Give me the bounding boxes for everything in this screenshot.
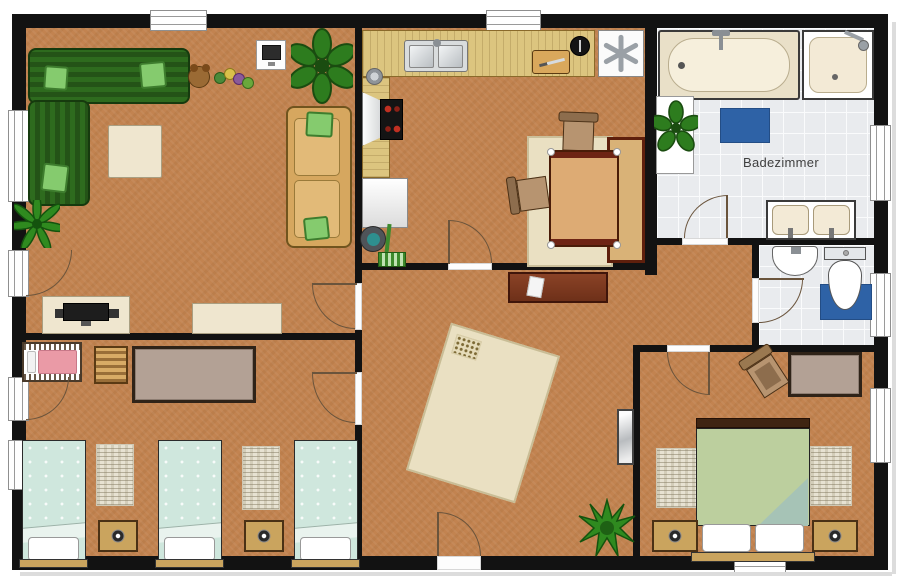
bed-blanket	[295, 441, 357, 533]
dining-chair[interactable]	[555, 111, 600, 153]
toilet-button	[843, 250, 849, 256]
table-leg	[547, 148, 555, 156]
striped-dresser[interactable]	[94, 346, 128, 384]
bed-footboard	[19, 559, 88, 568]
threshold-living-hall	[355, 283, 362, 330]
spiky-plant[interactable]	[578, 498, 636, 558]
double-bed[interactable]	[696, 418, 810, 562]
toys[interactable]	[188, 64, 254, 92]
single-bed[interactable]	[158, 440, 222, 566]
sofa-cushion	[305, 111, 333, 137]
bedside-rug[interactable]	[810, 446, 852, 506]
tv	[63, 303, 109, 321]
bed-pillow	[755, 524, 804, 552]
nightstand-knob	[258, 530, 271, 543]
entrance-door-threshold[interactable]	[437, 556, 481, 570]
toilet-tank	[824, 247, 866, 260]
tv-stand	[81, 321, 91, 326]
bucket-water	[367, 233, 380, 246]
bathtub-faucet-stem	[719, 35, 723, 50]
bed-footboard	[155, 559, 224, 568]
washing-machine[interactable]	[362, 178, 408, 228]
rug-block	[451, 334, 482, 361]
vanity-tap	[788, 228, 793, 238]
nightstand[interactable]	[652, 520, 698, 552]
nightstand[interactable]	[244, 520, 284, 552]
window-left-1[interactable]	[8, 110, 29, 202]
nightstand-knob	[112, 530, 125, 543]
plan-shadow-right	[892, 22, 896, 574]
bench[interactable]	[192, 303, 282, 334]
bedside-rug[interactable]	[242, 446, 280, 510]
mirror[interactable]	[617, 409, 634, 465]
bed-pillow	[28, 537, 79, 561]
nightstand-knob	[829, 530, 842, 543]
window-right-bedroom[interactable]	[870, 388, 891, 463]
monitor-stand	[268, 62, 275, 66]
bed-headboard	[696, 418, 810, 428]
shower-drain	[832, 74, 838, 80]
wall-outer-top	[12, 14, 888, 28]
bed-blanket	[159, 441, 221, 533]
threshold-kitchen-hall	[448, 263, 492, 270]
room-label-bathroom: Badezimmer	[743, 155, 819, 170]
bed-footboard	[291, 559, 360, 568]
bath-mat[interactable]	[720, 108, 770, 143]
window-top-1[interactable]	[150, 10, 207, 31]
wall-bath-bottom-a	[645, 238, 682, 245]
window-top-2[interactable]	[486, 10, 541, 31]
sink-basin	[409, 45, 434, 68]
wall-bedroom-top-b	[710, 345, 874, 352]
bathroom-plant[interactable]	[654, 100, 698, 156]
bedside-rug[interactable]	[656, 448, 698, 508]
bed-footboard	[691, 552, 815, 562]
table-rail	[551, 152, 617, 158]
stove-cooktop[interactable]	[380, 99, 403, 140]
counter-knob	[366, 68, 383, 85]
sofa-cushion	[303, 216, 330, 241]
table-leg	[613, 241, 621, 249]
table-leg	[547, 241, 555, 249]
bed-pillow	[702, 524, 751, 552]
bed-pillow	[300, 537, 351, 561]
dining-table[interactable]	[549, 150, 619, 247]
floor-plan: Badezimmer	[0, 0, 900, 580]
window-right-wc[interactable]	[870, 273, 891, 337]
nightstand-knob	[669, 530, 682, 543]
wall-monitor[interactable]	[256, 40, 286, 70]
bathtub[interactable]	[658, 30, 800, 100]
palm-plant[interactable]	[14, 200, 60, 248]
nightstand[interactable]	[812, 520, 858, 552]
chair-seat	[562, 120, 594, 151]
threshold-bedroom	[667, 345, 710, 352]
sink-basin	[438, 45, 463, 68]
threshold-bathroom	[682, 238, 728, 245]
bedside-rug[interactable]	[96, 444, 134, 506]
coffee-table[interactable]	[108, 125, 162, 178]
sofa-cushion	[40, 163, 69, 194]
bedroom-rug[interactable]	[788, 352, 862, 397]
bed-blanket	[23, 441, 85, 533]
pot[interactable]	[570, 36, 590, 56]
teddy-ear	[190, 64, 198, 72]
sofa-cushion	[139, 61, 167, 89]
mop[interactable]	[378, 252, 406, 267]
sideboard[interactable]	[508, 272, 608, 303]
single-bed[interactable]	[22, 440, 86, 566]
double-vanity[interactable]	[766, 200, 856, 240]
bathtub-drain	[678, 62, 685, 69]
vanity-tap	[829, 228, 834, 238]
kids-rug[interactable]	[132, 346, 256, 403]
crib-pillow	[27, 351, 36, 373]
wall-living-kids	[26, 333, 362, 340]
shower[interactable]	[802, 30, 874, 100]
crib-blanket	[38, 350, 77, 374]
nightstand[interactable]	[98, 520, 138, 552]
window-right-bath[interactable]	[870, 125, 891, 201]
freezer[interactable]	[598, 30, 644, 77]
tv-console[interactable]	[42, 296, 130, 334]
table-rail	[551, 239, 617, 245]
threshold-kids-hall	[355, 372, 362, 425]
plan-shadow-bottom	[20, 572, 892, 576]
wc-tap	[791, 247, 801, 254]
large-potted-plant[interactable]	[291, 28, 353, 104]
bathtub-basin	[668, 38, 790, 92]
teddy-ear	[202, 64, 210, 72]
threshold-wc	[752, 278, 759, 323]
double-sink[interactable]	[404, 40, 468, 72]
sofa-cushion	[43, 65, 69, 91]
pot-handle	[579, 40, 581, 52]
paper-sheet	[526, 276, 544, 298]
monitor-screen	[262, 45, 281, 60]
knife-icon	[539, 58, 565, 67]
cutting-board[interactable]	[532, 50, 570, 74]
wall-bedroom-top-a	[633, 345, 667, 352]
faucet-icon	[433, 39, 441, 47]
chair-seat	[516, 176, 550, 212]
table-leg	[613, 148, 621, 156]
snowflake-icon	[599, 31, 643, 76]
bucket[interactable]	[360, 226, 386, 252]
single-bed[interactable]	[294, 440, 358, 566]
bed-pillow	[164, 537, 215, 561]
crib[interactable]	[22, 342, 82, 382]
shower-head-icon	[858, 40, 869, 51]
toy-segment	[242, 77, 254, 89]
wall-wc-left-a	[752, 245, 759, 278]
